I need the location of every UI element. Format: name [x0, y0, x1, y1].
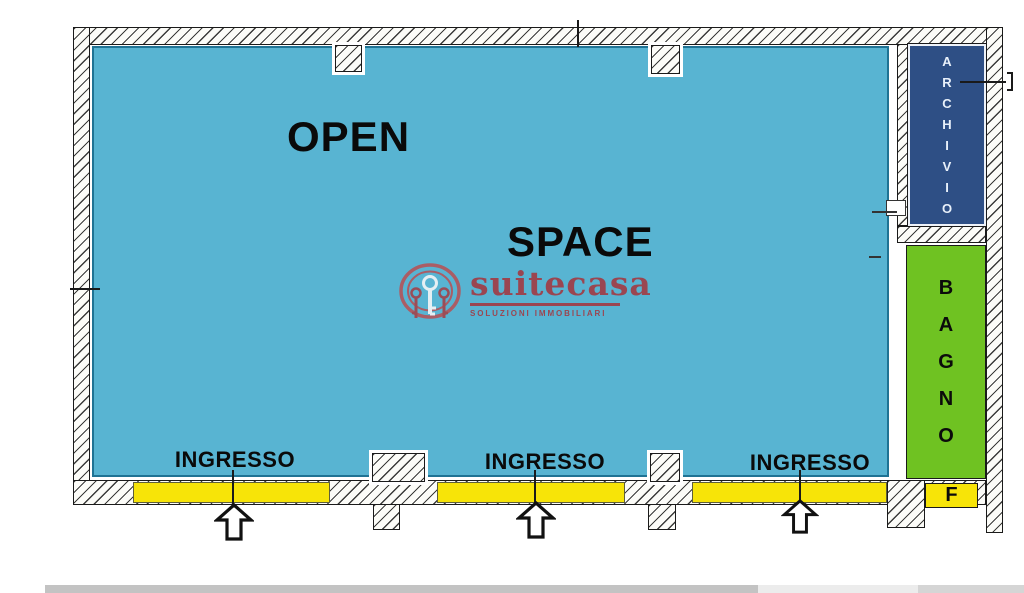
pillar-cross-2-bottom: [648, 504, 676, 530]
brand-name: suitecasa: [470, 268, 652, 299]
wall-right: [986, 27, 1003, 533]
floor-plan-image[interactable]: F A R C H I V I O B A G N O O: [0, 0, 1024, 593]
room-bagno-label: B A G N O: [907, 246, 985, 478]
wall-archivio-left: [897, 44, 908, 226]
wall-archivio-bottom: [897, 226, 986, 243]
entrance-arrow-icon-3: [781, 499, 819, 539]
wall-left: [73, 27, 90, 505]
open-space-word-2: SPACE: [507, 221, 654, 263]
horizontal-scrollbar-thumb[interactable]: [45, 585, 758, 593]
entrance-strip-2: [437, 482, 625, 503]
brand-rule: [470, 303, 620, 306]
entrance-arrow-icon-2: [516, 501, 556, 544]
horizontal-scrollbar-segment[interactable]: [918, 585, 1024, 593]
tick-entrance-1: [232, 470, 234, 504]
tick-left-wall: [70, 288, 100, 290]
pillar-cross-2-top: [650, 453, 680, 482]
pillar-bottom-right: [887, 480, 925, 528]
door-mark-2: [869, 256, 881, 258]
entrance-label-1: INGRESSO: [150, 447, 320, 473]
room-archivio: A R C H I V I O: [908, 44, 986, 226]
pillar-stub-top-2: [651, 45, 680, 74]
room-f: F: [925, 483, 978, 508]
brand-emblem-icon: [398, 262, 462, 333]
entrance-label-3: INGRESSO: [725, 450, 895, 476]
brand-tagline: SOLUZIONI IMMOBILIARI: [470, 309, 652, 318]
room-archivio-label: A R C H I V I O: [910, 46, 984, 224]
open-space-word-1: OPEN: [287, 116, 410, 158]
tick-top-wall: [577, 20, 579, 47]
entrance-arrow-icon-1: [214, 503, 254, 546]
tick-entrance-2: [534, 470, 536, 504]
room-bagno: B A G N O: [906, 245, 986, 479]
tick-bracket: [1007, 72, 1013, 91]
pillar-cross-1-bottom: [373, 504, 400, 530]
wall-top: [73, 27, 1003, 45]
tick-right-wall: [960, 81, 1006, 83]
door-mark-1: [872, 211, 897, 213]
entrance-label-2: INGRESSO: [460, 449, 630, 475]
room-f-label: F: [945, 484, 957, 507]
pillar-cross-1-top: [372, 453, 425, 482]
pillar-stub-top-1: [335, 45, 362, 72]
wall-notch: [886, 200, 906, 216]
watermark-logo: suitecasa SOLUZIONI IMMOBILIARI: [398, 262, 652, 333]
